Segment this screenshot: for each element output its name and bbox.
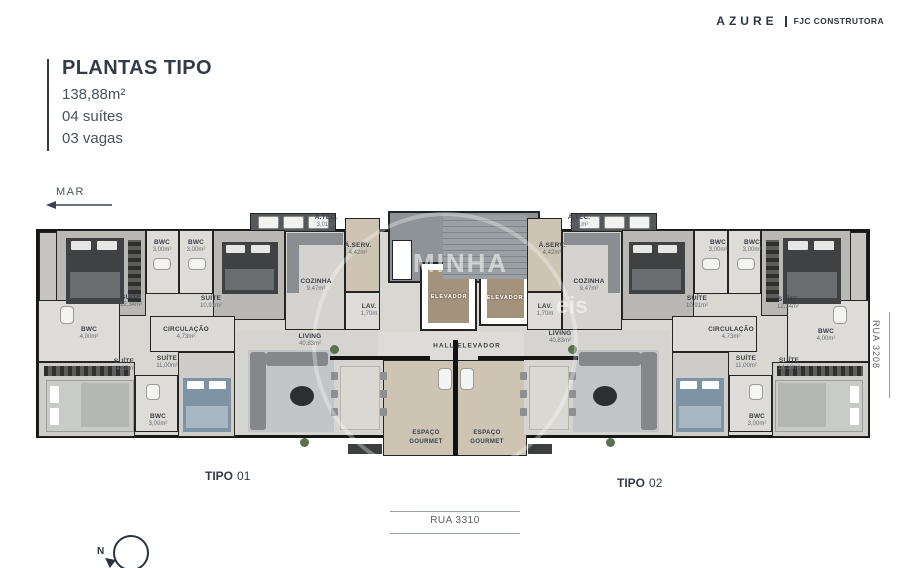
bed [629, 242, 685, 294]
label-bwc-300-b-t1: BWC3,00m² [187, 239, 206, 255]
bed [676, 378, 724, 432]
floorplan-poster: AZURE FJC CONSTRUTORA PLANTAS TIPO 138,8… [0, 0, 900, 568]
label-bwc-300-c-t2: BWC3,00m² [748, 413, 767, 429]
ac-unit-icon [258, 216, 279, 229]
bed [46, 380, 134, 432]
label-cozinha-t2: COZINHA9,47m² [573, 278, 604, 294]
watermark-fragment: eis [556, 292, 588, 319]
brand-lockup: AZURE FJC CONSTRUTORA [716, 14, 884, 28]
kitchen-counter [287, 233, 343, 245]
label-lav-t1: LAV.1,70m [361, 303, 378, 319]
spec-area: 138,88m² [62, 86, 125, 103]
toilet [833, 306, 847, 324]
label-bwc-300-a-t1: BWC3,00m² [153, 239, 172, 255]
kitchen-counter [608, 245, 620, 293]
caption-tipo-02: TIPO02 [617, 476, 662, 490]
sea-arrow-icon [46, 199, 116, 211]
label-suite-1091-t1: SUÍTE10,91m² [200, 295, 222, 311]
street-side-label: RUA 3208 [871, 320, 881, 369]
ac-unit-icon [604, 216, 625, 229]
coffee-table [593, 386, 617, 406]
sofa [250, 352, 266, 430]
street-side-rule [889, 312, 890, 398]
caption-tipo-01: TIPO01 [205, 469, 250, 483]
label-bwc-400-t1: BWC4,00m² [80, 326, 99, 342]
label-atec-t2: Á.TEC.3,01m² [568, 214, 591, 230]
brand-divider [785, 16, 787, 27]
spec-parking: 03 vagas [62, 130, 123, 147]
kitchen-counter [564, 233, 620, 245]
sofa [641, 352, 657, 430]
toilet [749, 384, 763, 400]
label-bwc-400-t2: BWC4,00m² [817, 328, 836, 344]
sink [188, 258, 206, 270]
label-gourmet-right: ESPAÇOGOURMET [470, 429, 503, 447]
wardrobe [128, 240, 141, 302]
spec-suites: 04 suítes [62, 108, 123, 125]
label-circulacao-t2: CIRCULAÇÃO4,73m² [708, 326, 754, 342]
sofa [579, 352, 641, 366]
label-aserv-t2: Á.SERV.4,42m² [539, 242, 566, 258]
sink [153, 258, 171, 270]
label-cozinha-t1: COZINHA9,47m² [300, 278, 331, 294]
label-suite-1418-t2: SUÍTE14,18m² [778, 357, 800, 373]
bed [183, 378, 231, 432]
label-circulacao-t1: CIRCULAÇÃO4,73m² [163, 326, 209, 342]
toilet [146, 384, 160, 400]
label-suite-1100-t1: SUÍTE11,00m² [156, 355, 178, 371]
toilet [60, 306, 74, 324]
compass-icon [113, 535, 149, 568]
label-elevator-left: ELEVADOR [431, 294, 468, 300]
label-suite-1418-t1: SUÍTE14,18m² [113, 358, 135, 374]
label-bwc-300-a-t2: BWC3,00m² [743, 239, 762, 255]
label-aserv-t1: Á.SERV.4,42m² [345, 242, 372, 258]
street-rule-bottom [390, 533, 520, 534]
sea-label: MAR [56, 186, 85, 198]
street-bottom-label: RUA 3310 [390, 515, 520, 526]
street-rule-top [390, 511, 520, 512]
label-suite-1234-t2: SUÍTE12,34m² [777, 296, 799, 312]
plant [606, 438, 615, 447]
bed [783, 238, 841, 304]
wardrobe [766, 240, 779, 302]
title-rule [47, 59, 49, 151]
label-bwc-300-b-t2: BWC3,00m² [709, 239, 728, 255]
ac-unit-icon [283, 216, 304, 229]
watermark-text: MINHA [413, 248, 508, 279]
bed [66, 238, 124, 304]
label-bwc-300-c-t1: BWC3,00m² [149, 413, 168, 429]
bed [775, 380, 863, 432]
coffee-table [290, 386, 314, 406]
brand-company: FJC CONSTRUTORA [794, 16, 884, 26]
label-suite-1100-t2: SUÍTE11,00m² [735, 355, 757, 371]
sink [702, 258, 720, 270]
label-gourmet-left: ESPAÇOGOURMET [409, 429, 442, 447]
label-living-t2: LIVING40,83m² [549, 330, 572, 346]
label-lav-t2: LAV.1,70m [537, 303, 554, 319]
page-title: PLANTAS TIPO [62, 57, 212, 80]
label-suite-1091-t2: SUÍTE10,91m² [686, 295, 708, 311]
kitchen-counter [287, 245, 299, 293]
plant [300, 438, 309, 447]
compass-north-label: N [97, 546, 104, 557]
brand-azure: AZURE [716, 14, 777, 28]
ac-unit-icon [629, 216, 650, 229]
label-living-t1: LIVING40,83m² [299, 333, 322, 349]
label-atec-t1: Á.TEC.3,01m² [315, 214, 338, 230]
label-elevator-right: ELEVADOR [487, 295, 524, 301]
bed [222, 242, 278, 294]
sink [737, 258, 755, 270]
label-hall-elevador: HALL ELEVADOR [433, 343, 501, 350]
label-suite-1234-t1: SUÍTE12,34m² [120, 294, 142, 310]
